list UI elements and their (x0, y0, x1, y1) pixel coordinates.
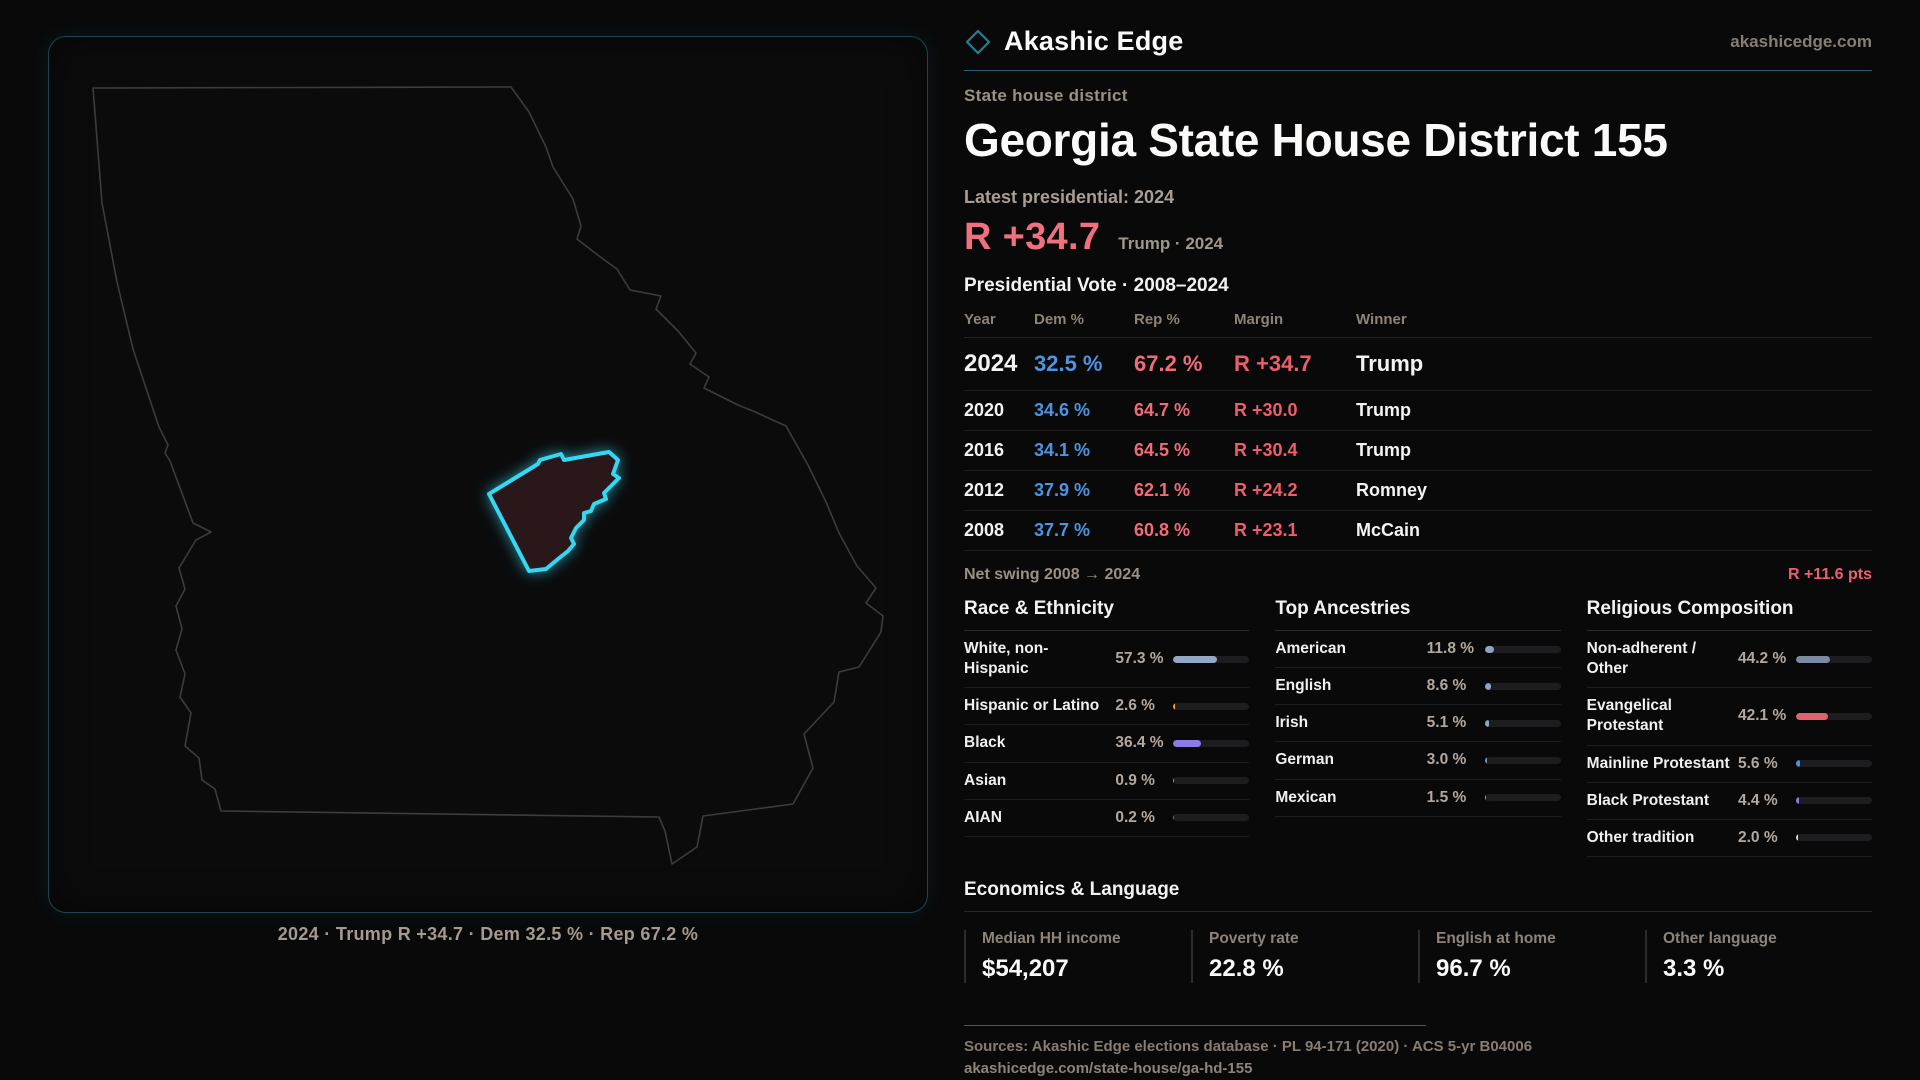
demo-value: 8.6 % (1427, 677, 1485, 695)
demo-bar-track (1485, 720, 1561, 727)
demo-value: 0.9 % (1115, 772, 1173, 790)
stat-value: $54,207 (982, 955, 1191, 983)
col-rep: Rep % (1134, 311, 1234, 328)
header: Akashic Edge akashicedge.com (964, 26, 1872, 57)
vote-cell-dem: 34.1 % (1034, 440, 1134, 461)
religion-section: Religious Composition Non-adherent / Oth… (1587, 598, 1872, 857)
economics-stat: Other language3.3 % (1645, 930, 1872, 983)
vote-cell-rep: 62.1 % (1134, 480, 1234, 501)
demo-bar-fill (1173, 740, 1201, 747)
demo-bar-track (1796, 713, 1872, 720)
demo-row: American11.8 % (1275, 631, 1560, 668)
vote-table-row: 200837.7 %60.8 %R +23.1McCain (964, 511, 1872, 551)
demo-bar-track (1485, 683, 1561, 690)
vote-cell-year: 2020 (964, 400, 1034, 421)
demo-row: Mexican1.5 % (1275, 780, 1560, 817)
brand-name: Akashic Edge (1004, 26, 1183, 57)
demo-label: German (1275, 750, 1426, 770)
demo-label: Irish (1275, 713, 1426, 733)
demo-label: White, non-Hispanic (964, 639, 1115, 679)
demo-label: AIAN (964, 808, 1115, 828)
demo-row: White, non-Hispanic57.3 % (964, 631, 1249, 688)
vote-cell-winner: Trump (1356, 440, 1872, 461)
demo-row: English8.6 % (1275, 668, 1560, 705)
demo-value: 2.0 % (1738, 829, 1796, 847)
demo-label: Asian (964, 771, 1115, 791)
vote-cell-year: 2016 (964, 440, 1034, 461)
vote-table-body: 202432.5 %67.2 %R +34.7Trump202034.6 %64… (964, 338, 1872, 551)
stat-label: Median HH income (982, 930, 1191, 948)
headline-margin-row: R +34.7 Trump · 2024 (964, 216, 1872, 259)
demo-bar-track (1173, 703, 1249, 710)
page: 2024 · Trump R +34.7 · Dem 32.5 % · Rep … (0, 0, 1920, 1080)
demo-bar-track (1173, 777, 1249, 784)
demo-bar-track (1173, 656, 1249, 663)
demo-row: Evangelical Protestant42.1 % (1587, 688, 1872, 745)
demo-bar-fill (1485, 646, 1494, 653)
demo-row: Hispanic or Latino2.6 % (964, 688, 1249, 725)
vote-cell-winner: Romney (1356, 480, 1872, 501)
demo-row: Black Protestant4.4 % (1587, 783, 1872, 820)
demo-label: Mexican (1275, 788, 1426, 808)
demo-bar-fill (1796, 656, 1830, 663)
vote-table-title: Presidential Vote · 2008–2024 (964, 275, 1872, 297)
demo-bar-fill (1485, 720, 1489, 727)
ancestry-section: Top Ancestries American11.8 %English8.6 … (1275, 598, 1560, 857)
col-margin: Margin (1234, 311, 1356, 328)
demo-bar-track (1485, 794, 1561, 801)
vote-cell-margin: R +34.7 (1234, 351, 1356, 377)
demo-bar-track (1796, 834, 1872, 841)
page-title: Georgia State House District 155 (964, 113, 1872, 167)
demo-row: Other tradition2.0 % (1587, 820, 1872, 857)
demographics: Race & Ethnicity White, non-Hispanic57.3… (964, 598, 1872, 857)
demo-bar-fill (1485, 683, 1492, 690)
race-section-title: Race & Ethnicity (964, 598, 1249, 631)
demo-bar-track (1485, 757, 1561, 764)
demo-bar-track (1796, 760, 1872, 767)
vote-cell-rep: 64.5 % (1134, 440, 1234, 461)
demo-bar-fill (1173, 656, 1217, 663)
demo-bar-track (1796, 656, 1872, 663)
demo-value: 5.1 % (1427, 714, 1485, 732)
demo-label: English (1275, 676, 1426, 696)
georgia-map (49, 37, 929, 914)
demo-label: Non-adherent / Other (1587, 639, 1738, 679)
demo-bar-fill (1796, 834, 1798, 841)
brand: Akashic Edge (964, 26, 1183, 57)
headline-margin-value: R +34.7 (964, 216, 1100, 259)
demo-label: Other tradition (1587, 828, 1738, 848)
footer: Sources: Akashic Edge elections database… (964, 1025, 1872, 1077)
net-swing-value: R +11.6 pts (1788, 566, 1872, 584)
demo-value: 2.6 % (1115, 697, 1173, 715)
demo-label: Black Protestant (1587, 791, 1738, 811)
vote-cell-rep: 64.7 % (1134, 400, 1234, 421)
demo-value: 3.0 % (1427, 751, 1485, 769)
diamond-logo-icon (964, 28, 992, 56)
vote-cell-year: 2012 (964, 480, 1034, 501)
vote-cell-rep: 67.2 % (1134, 351, 1234, 377)
economics-stat: English at home96.7 % (1418, 930, 1645, 983)
stat-label: English at home (1436, 930, 1645, 948)
vote-cell-rep: 60.8 % (1134, 520, 1234, 541)
demo-row: AIAN0.2 % (964, 800, 1249, 837)
demo-bar-fill (1173, 703, 1175, 710)
detail-panel: Akashic Edge akashicedge.com State house… (964, 26, 1872, 1077)
vote-table-row: 201634.1 %64.5 %R +30.4Trump (964, 431, 1872, 471)
vote-table-row: 202432.5 %67.2 %R +34.7Trump (964, 338, 1872, 391)
vote-table-row: 202034.6 %64.7 %R +30.0Trump (964, 391, 1872, 431)
col-dem: Dem % (1034, 311, 1134, 328)
demo-label: American (1275, 639, 1426, 659)
vote-cell-margin: R +30.0 (1234, 400, 1356, 421)
vote-cell-winner: Trump (1356, 351, 1872, 377)
economics-title: Economics & Language (964, 879, 1872, 912)
religion-section-title: Religious Composition (1587, 598, 1872, 631)
demo-row: Irish5.1 % (1275, 705, 1560, 742)
demo-bar-fill (1796, 713, 1828, 720)
col-year: Year (964, 311, 1034, 328)
vote-cell-margin: R +23.1 (1234, 520, 1356, 541)
vote-cell-dem: 37.9 % (1034, 480, 1134, 501)
map-caption: 2024 · Trump R +34.7 · Dem 32.5 % · Rep … (48, 924, 928, 945)
vote-cell-year: 2024 (964, 350, 1034, 378)
demo-bar-track (1173, 814, 1249, 821)
demo-row: Mainline Protestant5.6 % (1587, 746, 1872, 783)
vote-cell-dem: 34.6 % (1034, 400, 1134, 421)
demo-bar-fill (1796, 760, 1800, 767)
net-swing-row: Net swing 2008 → 2024 R +11.6 pts (964, 566, 1872, 584)
net-swing-label: Net swing 2008 → 2024 (964, 566, 1140, 584)
demo-label: Mainline Protestant (1587, 754, 1738, 774)
race-section: Race & Ethnicity White, non-Hispanic57.3… (964, 598, 1249, 857)
brand-domain-link[interactable]: akashicedge.com (1730, 32, 1872, 52)
demo-value: 11.8 % (1427, 640, 1485, 658)
vote-cell-dem: 32.5 % (1034, 351, 1134, 377)
col-winner: Winner (1356, 311, 1872, 328)
stat-label: Other language (1663, 930, 1872, 948)
demo-bar-fill (1173, 777, 1174, 784)
vote-cell-dem: 37.7 % (1034, 520, 1134, 541)
demo-row: Non-adherent / Other44.2 % (1587, 631, 1872, 688)
demo-row: German3.0 % (1275, 742, 1560, 779)
vote-table-header: Year Dem % Rep % Margin Winner (964, 311, 1872, 338)
demo-bar-fill (1485, 757, 1487, 764)
georgia-outline (93, 87, 883, 864)
demo-label: Evangelical Protestant (1587, 696, 1738, 736)
race-rows: White, non-Hispanic57.3 %Hispanic or Lat… (964, 631, 1249, 837)
kicker: State house district (964, 86, 1872, 106)
vote-cell-year: 2008 (964, 520, 1034, 541)
sources-text: Sources: Akashic Edge elections database… (964, 1038, 1872, 1055)
economics-stat: Poverty rate22.8 % (1191, 930, 1418, 983)
demo-value: 5.6 % (1738, 755, 1796, 773)
demo-value: 4.4 % (1738, 792, 1796, 810)
demo-row: Black36.4 % (964, 725, 1249, 762)
demo-value: 36.4 % (1115, 734, 1173, 752)
vote-table-row: 201237.9 %62.1 %R +24.2Romney (964, 471, 1872, 511)
economics-stat: Median HH income$54,207 (964, 930, 1191, 983)
demo-value: 0.2 % (1115, 809, 1173, 827)
footer-divider (964, 1025, 1426, 1026)
demo-bar-fill (1485, 794, 1486, 801)
demo-label: Black (964, 733, 1115, 753)
vote-cell-margin: R +24.2 (1234, 480, 1356, 501)
demo-value: 42.1 % (1738, 707, 1796, 725)
stat-label: Poverty rate (1209, 930, 1418, 948)
demo-value: 44.2 % (1738, 650, 1796, 668)
demo-bar-track (1796, 797, 1872, 804)
demo-bar-track (1485, 646, 1561, 653)
demo-label: Hispanic or Latino (964, 696, 1115, 716)
demo-row: Asian0.9 % (964, 763, 1249, 800)
stat-value: 3.3 % (1663, 955, 1872, 983)
vote-cell-winner: Trump (1356, 400, 1872, 421)
vote-cell-margin: R +30.4 (1234, 440, 1356, 461)
header-divider (964, 70, 1872, 71)
vote-cell-winner: McCain (1356, 520, 1872, 541)
state-map-panel (48, 36, 928, 913)
district-shape[interactable] (489, 452, 619, 571)
stat-value: 22.8 % (1209, 955, 1418, 983)
source-link[interactable]: akashicedge.com/state-house/ga-hd-155 (964, 1060, 1872, 1077)
demo-value: 57.3 % (1115, 650, 1173, 668)
latest-presidential-label: Latest presidential: 2024 (964, 187, 1872, 208)
demo-bar-track (1173, 740, 1249, 747)
demo-bar-fill (1796, 797, 1799, 804)
headline-margin-sub: Trump · 2024 (1118, 234, 1223, 254)
economics-stats: Median HH income$54,207Poverty rate22.8 … (964, 930, 1872, 983)
ancestry-rows: American11.8 %English8.6 %Irish5.1 %Germ… (1275, 631, 1560, 817)
ancestry-section-title: Top Ancestries (1275, 598, 1560, 631)
religion-rows: Non-adherent / Other44.2 %Evangelical Pr… (1587, 631, 1872, 857)
stat-value: 96.7 % (1436, 955, 1645, 983)
demo-value: 1.5 % (1427, 789, 1485, 807)
